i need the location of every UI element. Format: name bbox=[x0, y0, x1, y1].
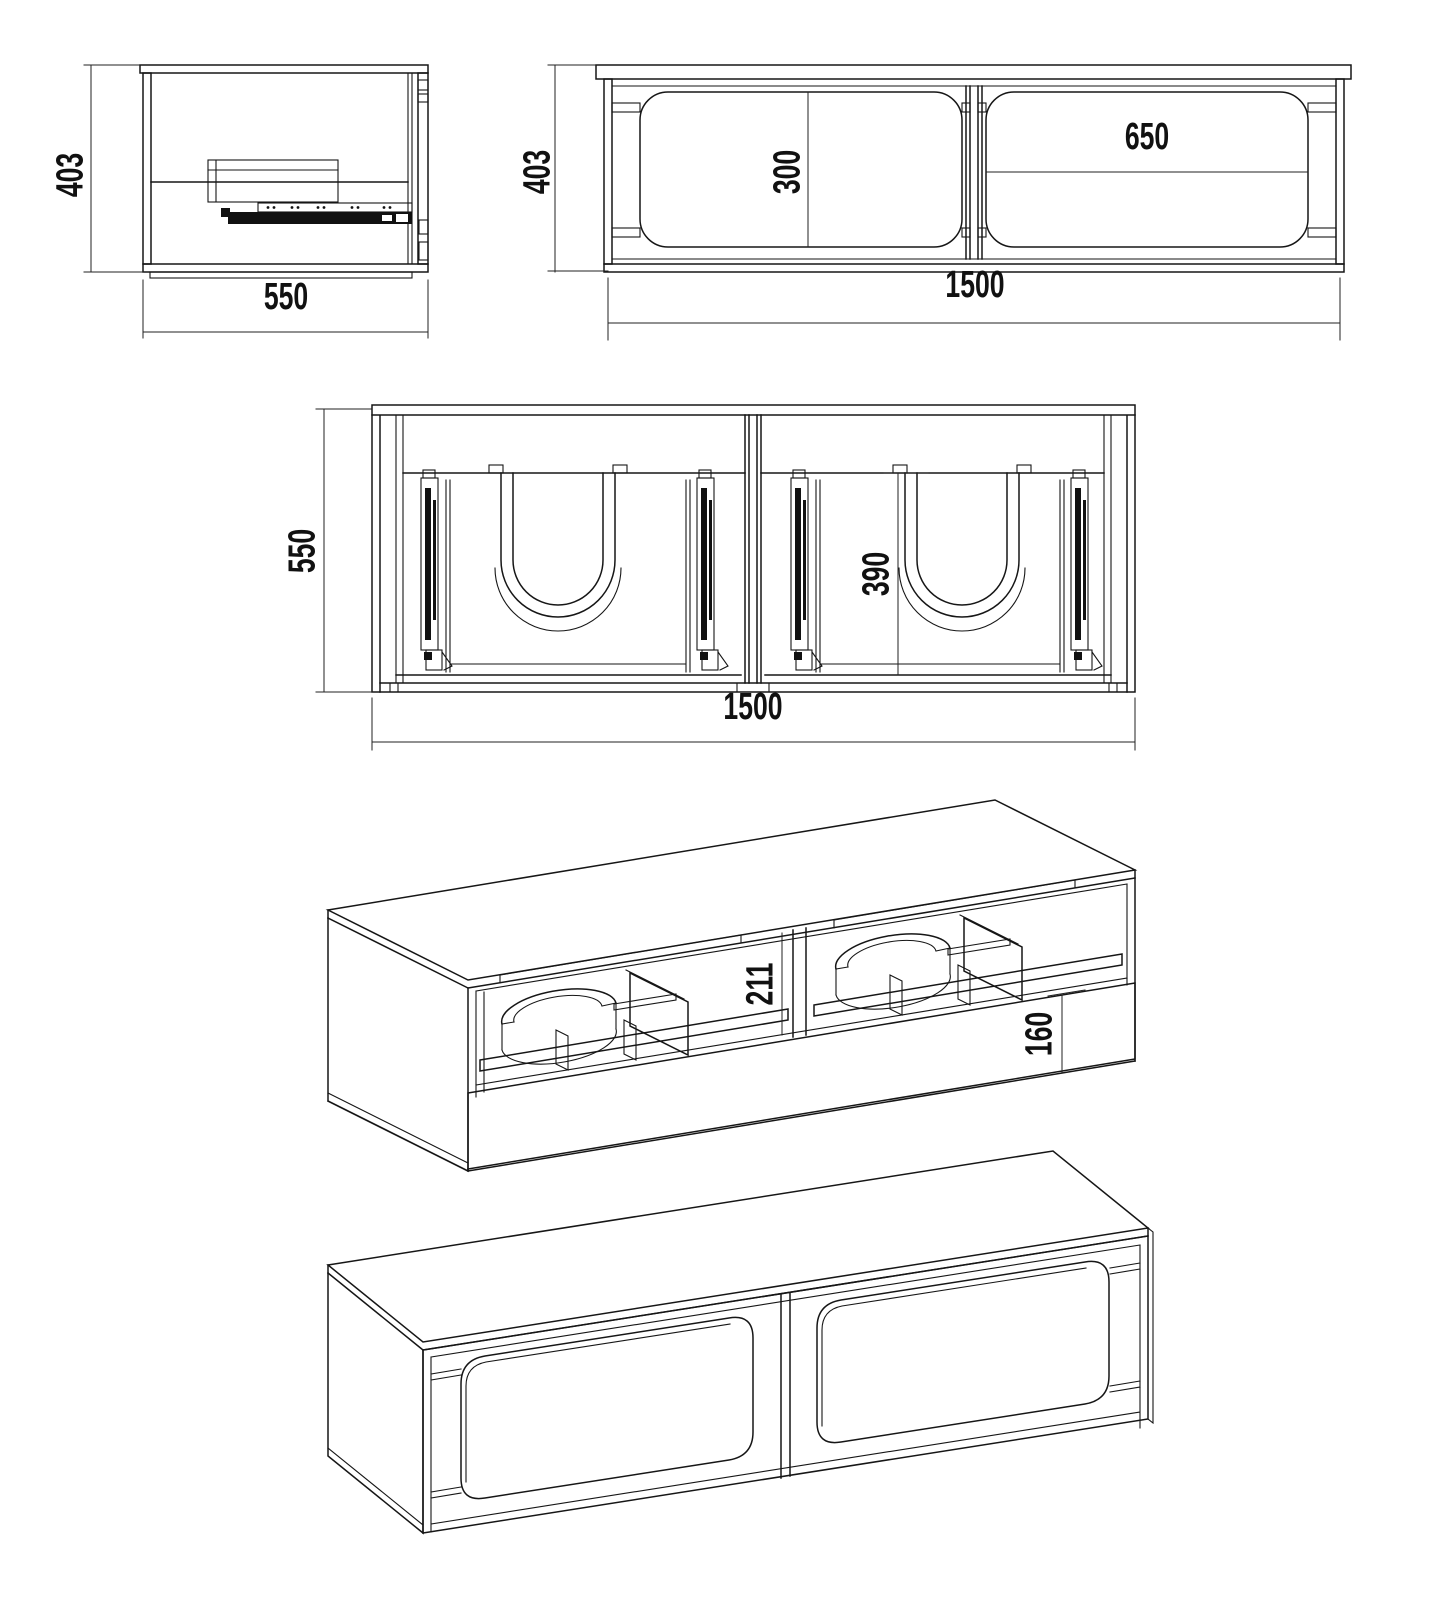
dim-front-height-label: 403 bbox=[515, 150, 558, 194]
front-dim-width: 1500 bbox=[608, 262, 1340, 340]
dim-front-width-label: 1500 bbox=[945, 262, 1004, 305]
iso-dim-front-height: 160 bbox=[1017, 990, 1085, 1072]
basin-mount-tabs bbox=[489, 465, 1031, 473]
front-dim-height: 403 bbox=[515, 65, 608, 272]
dim-plan-width-label: 1500 bbox=[723, 684, 782, 727]
plan-view: 550 390 1500 bbox=[280, 405, 1135, 750]
dim-panel-height-label: 300 bbox=[765, 150, 808, 194]
technical-drawing-canvas: 403 550 bbox=[0, 0, 1437, 1600]
dim-opening-height-label: 211 bbox=[738, 963, 781, 1006]
slide-hole-dots bbox=[267, 206, 392, 209]
plan-dim-depth: 550 bbox=[280, 409, 372, 692]
dim-front-panel-height-label: 160 bbox=[1017, 1012, 1060, 1056]
iso-dim-opening-height: 211 bbox=[738, 933, 787, 1035]
dim-side-depth-label: 550 bbox=[264, 274, 308, 317]
iso-closed-view bbox=[328, 1151, 1153, 1533]
dim-basin-depth-label: 390 bbox=[854, 552, 897, 596]
front-view: 403 300 650 1500 bbox=[515, 65, 1351, 340]
front-dim-panel-height: 300 bbox=[765, 92, 813, 247]
closed-door-tabs bbox=[431, 1263, 1140, 1498]
plan-dim-width: 1500 bbox=[372, 684, 1135, 750]
side-dim-height: 403 bbox=[48, 65, 143, 272]
dim-plan-depth-label: 550 bbox=[280, 529, 323, 573]
front-dim-panel-width: 650 bbox=[986, 114, 1308, 177]
side-dim-depth: 550 bbox=[143, 274, 428, 338]
side-view: 403 550 bbox=[48, 65, 428, 338]
door-mount-tabs bbox=[612, 103, 1336, 237]
dim-panel-width-label: 650 bbox=[1125, 114, 1169, 157]
iso-open-view: 211 160 bbox=[328, 800, 1135, 1171]
dim-side-height-label: 403 bbox=[48, 153, 91, 197]
drawing-page: 403 550 bbox=[0, 0, 1437, 1600]
